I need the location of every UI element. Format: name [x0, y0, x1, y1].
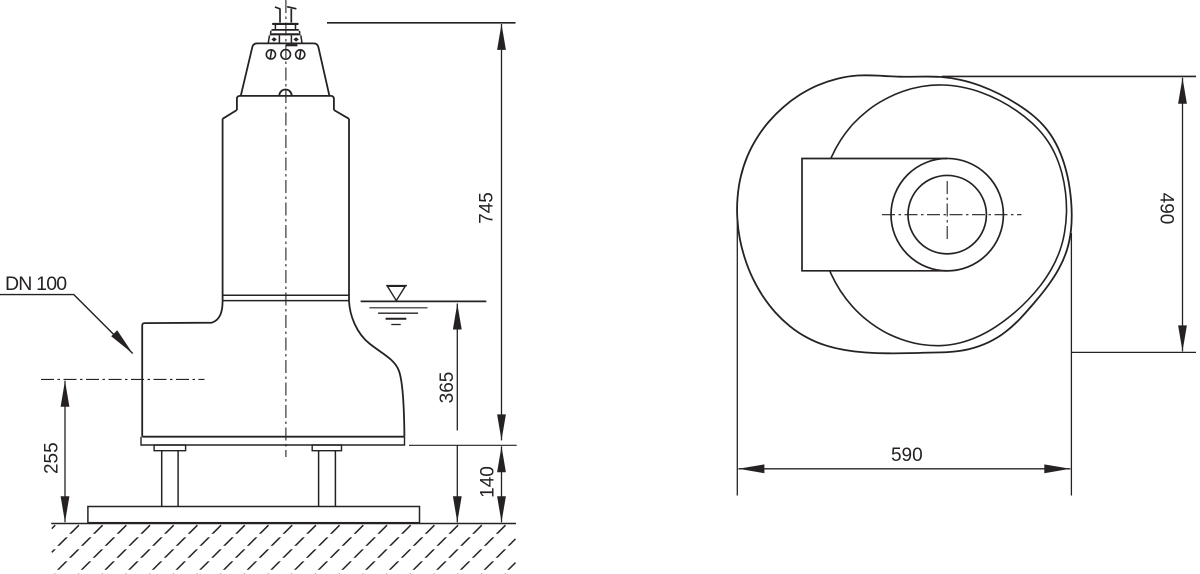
svg-text:745: 745	[477, 192, 498, 224]
svg-text:590: 590	[891, 445, 923, 466]
svg-text:255: 255	[42, 442, 63, 474]
svg-text:140: 140	[477, 466, 498, 498]
svg-text:DN 100: DN 100	[5, 273, 67, 295]
svg-text:365: 365	[437, 372, 458, 404]
svg-text:490: 490	[1155, 193, 1176, 225]
